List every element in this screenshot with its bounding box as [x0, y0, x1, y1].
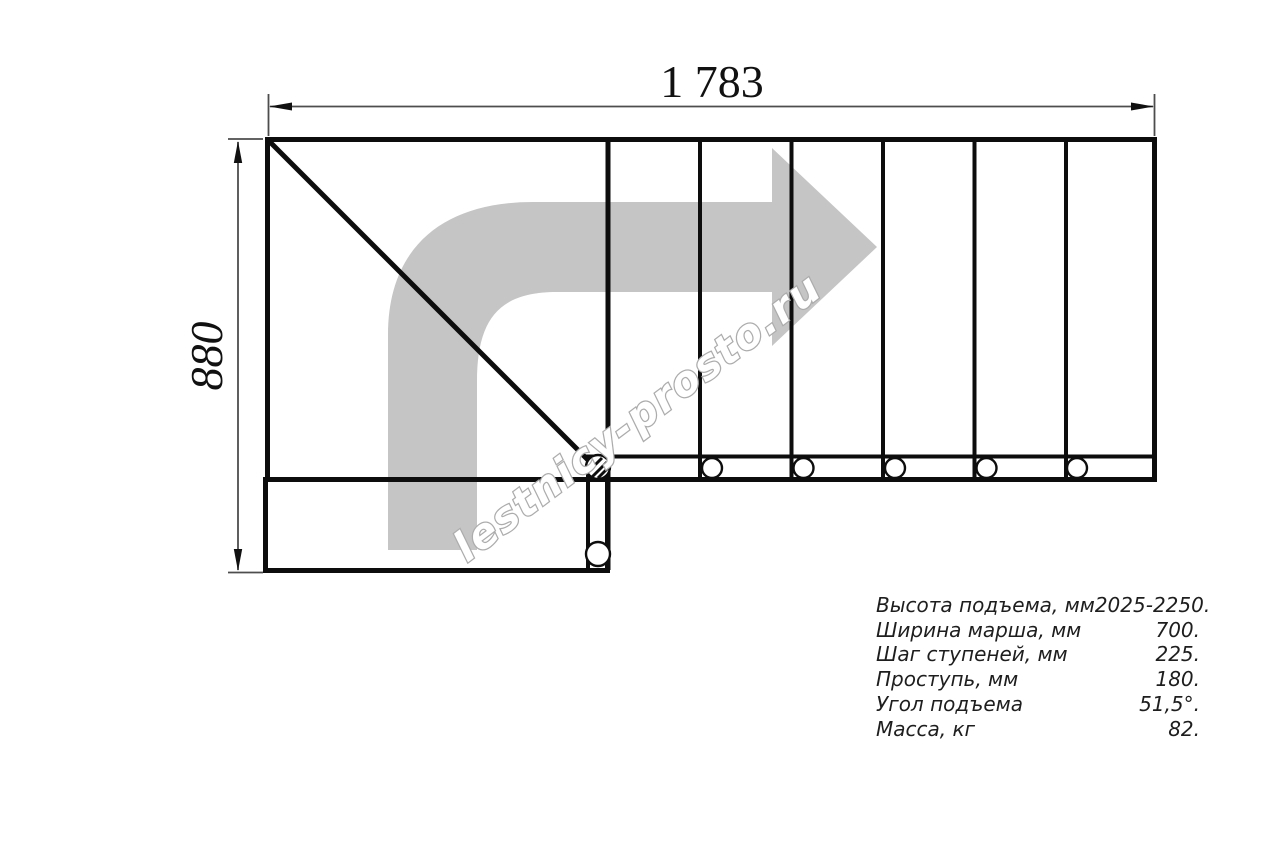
- post-circle: [702, 458, 722, 478]
- post-circle: [794, 458, 814, 478]
- spec-label: Шаг ступеней, мм: [876, 642, 1068, 667]
- spec-label: Ширина марша, мм: [876, 618, 1081, 643]
- post-circle: [885, 458, 905, 478]
- dimension-arrowheads: [234, 103, 1154, 572]
- spec-value: 82.: [1168, 717, 1200, 742]
- spec-label: Масса, кг: [876, 717, 975, 742]
- spec-value: 700.: [1155, 618, 1200, 643]
- spec-label: Высота подъема, мм: [876, 593, 1095, 618]
- spec-row-step: Шаг ступеней, мм 225.: [876, 642, 1200, 667]
- spec-value: 225.: [1155, 642, 1200, 667]
- post-circles: [586, 455, 1087, 566]
- post-circle: [1067, 458, 1087, 478]
- spec-value: 180.: [1155, 667, 1200, 692]
- staircase-drawing-page: 1 783 880 lestnicy-prosto.ru Высота подъ…: [0, 0, 1280, 853]
- spec-label: Угол подъема: [876, 692, 1023, 717]
- post-circle-landing: [586, 542, 610, 566]
- spec-row-width: Ширина марша, мм 700.: [876, 618, 1200, 643]
- direction-arrow: [388, 148, 877, 550]
- spec-value: 51,5°.: [1139, 692, 1200, 717]
- post-circle: [977, 458, 997, 478]
- spec-row-tread: Проступь, мм 180.: [876, 667, 1200, 692]
- left-dimension-label: 880: [181, 322, 232, 391]
- dimensions: 1 783 880: [181, 56, 1155, 573]
- spec-value: 2025-2250.: [1095, 593, 1210, 618]
- spec-row-height: Высота подъема, мм 2025-2250.: [876, 593, 1200, 618]
- top-dimension-label: 1 783: [660, 56, 764, 107]
- spec-row-angle: Угол подъема 51,5°.: [876, 692, 1200, 717]
- watermark: lestnicy-prosto.ru: [444, 263, 831, 571]
- spec-table: Высота подъема, мм 2025-2250. Ширина мар…: [876, 593, 1200, 741]
- spec-row-mass: Масса, кг 82.: [876, 717, 1200, 742]
- spec-label: Проступь, мм: [876, 667, 1018, 692]
